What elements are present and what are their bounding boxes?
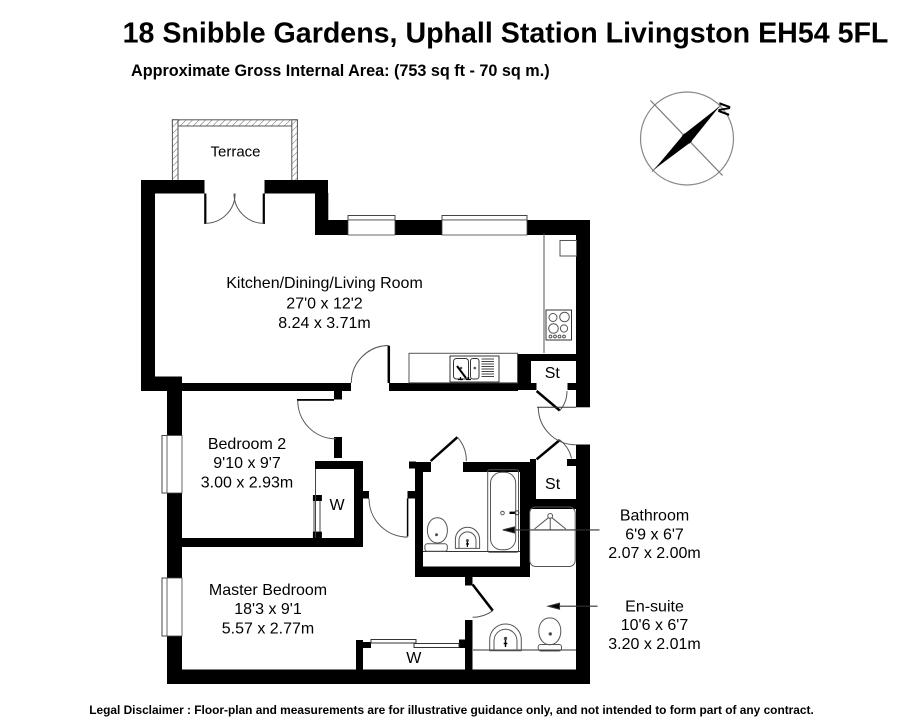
svg-text:6'9 x 6'7: 6'9 x 6'7	[625, 527, 684, 544]
svg-text:Approximate Gross Internal Are: Approximate Gross Internal Area: (753 sq…	[131, 62, 550, 80]
svg-text:Bathroom: Bathroom	[620, 508, 689, 525]
svg-text:18'3 x 9'1: 18'3 x 9'1	[234, 601, 302, 618]
svg-text:18 Snibble Gardens, Uphall Sta: 18 Snibble Gardens, Uphall Station Livin…	[123, 18, 889, 50]
svg-text:W: W	[329, 497, 345, 514]
svg-text:8.24 x 3.71m: 8.24 x 3.71m	[278, 315, 371, 332]
svg-text:Kitchen/Dining/Living Room: Kitchen/Dining/Living Room	[226, 275, 423, 292]
svg-text:2.07 x 2.00m: 2.07 x 2.00m	[608, 545, 701, 562]
svg-text:Master Bedroom: Master Bedroom	[209, 582, 327, 599]
svg-text:3.00 x 2.93m: 3.00 x 2.93m	[201, 475, 294, 492]
svg-text:5.57 x 2.77m: 5.57 x 2.77m	[222, 621, 315, 638]
svg-text:En-suite: En-suite	[625, 599, 684, 616]
svg-text:St: St	[545, 476, 561, 493]
svg-text:Legal Disclaimer : Floor-plan: Legal Disclaimer : Floor-plan and measur…	[89, 703, 814, 717]
svg-text:St: St	[545, 365, 561, 382]
svg-text:10'6 x 6'7: 10'6 x 6'7	[621, 617, 689, 634]
svg-text:Terrace: Terrace	[210, 144, 260, 161]
svg-text:W: W	[406, 650, 422, 667]
svg-text:9'10 x 9'7: 9'10 x 9'7	[213, 455, 281, 472]
svg-text:3.20 x 2.01m: 3.20 x 2.01m	[608, 636, 701, 653]
svg-text:27'0 x 12'2: 27'0 x 12'2	[286, 296, 362, 313]
svg-text:Bedroom 2: Bedroom 2	[208, 436, 286, 453]
